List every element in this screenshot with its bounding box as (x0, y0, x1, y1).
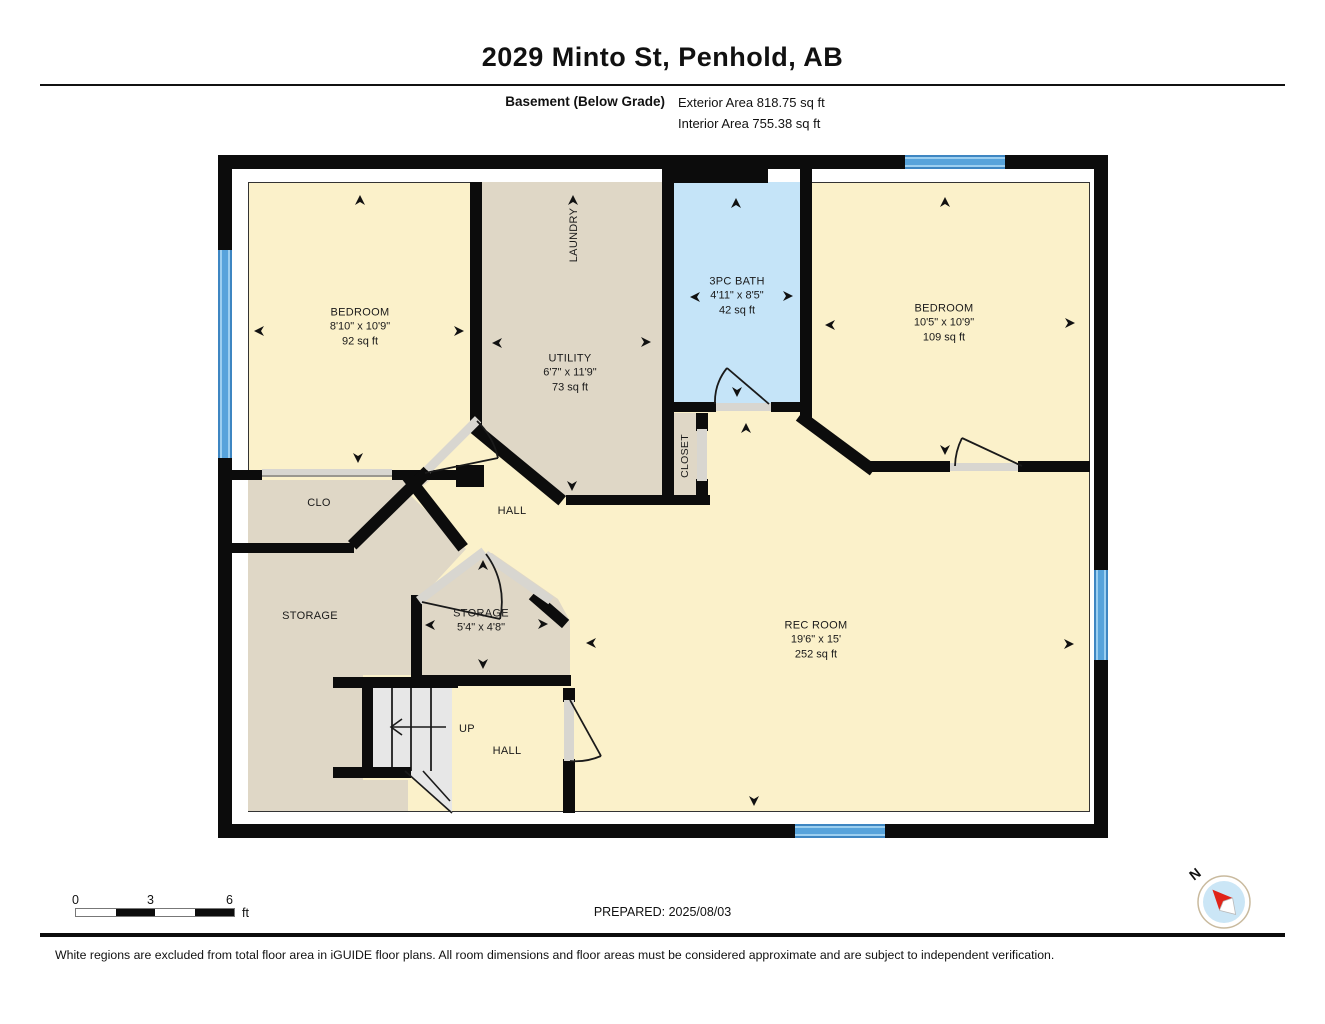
dimension-arrow-icon (492, 338, 502, 348)
door-swings (422, 368, 1022, 761)
dimension-arrows (254, 195, 1075, 806)
dimension-arrow-icon (690, 292, 700, 302)
floor-label: Basement (Below Grade) (0, 94, 665, 109)
dimension-arrow-icon (641, 337, 651, 347)
disclaimer-text: White regions are excluded from total fl… (55, 948, 1054, 962)
exterior-area: Exterior Area 818.75 sq ft (678, 95, 825, 110)
dimension-arrow-icon (586, 638, 596, 648)
dimension-arrow-icon (1064, 639, 1074, 649)
compass-icon: N (1180, 865, 1270, 935)
stairs-marks (391, 719, 452, 813)
dimension-arrow-icon (732, 387, 742, 397)
dimension-arrow-icon (355, 195, 365, 205)
label-storage-left: STORAGE (282, 609, 338, 623)
compass: N (1180, 865, 1270, 935)
label-up: UP (459, 722, 475, 736)
dimension-arrow-icon (478, 659, 488, 669)
label-hall: HALL (498, 504, 527, 518)
floor-plan: BEDROOM 8'10" x 10'9" 92 sq ft LAUNDRY U… (218, 155, 1108, 838)
dimension-arrow-icon (940, 197, 950, 207)
door-leaf (425, 458, 498, 473)
footer-divider (40, 933, 1285, 937)
dimension-arrow-icon (478, 560, 488, 570)
page-title: 2029 Minto St, Penhold, AB (0, 42, 1325, 73)
dimension-arrow-icon (454, 326, 464, 336)
label-storage-mid: STORAGE 5'4" x 4'8" (453, 607, 509, 636)
label-laundry: LAUNDRY (567, 208, 581, 262)
label-closet: CLOSET (679, 434, 693, 478)
door-leaf (570, 700, 601, 756)
plan-annotations-layer (218, 155, 1108, 838)
dimension-arrow-icon (731, 198, 741, 208)
dimension-arrow-icon (825, 320, 835, 330)
door-arc (477, 421, 498, 458)
interior-area: Interior Area 755.38 sq ft (678, 116, 820, 131)
dimension-arrow-icon (353, 453, 363, 463)
label-bath: 3PC BATH 4'11" x 8'5" 42 sq ft (709, 275, 764, 318)
door-arc (715, 368, 727, 404)
label-rec-room: REC ROOM 19'6" x 15' 252 sq ft (785, 619, 848, 662)
dimension-arrow-icon (1065, 318, 1075, 328)
dimension-arrow-icon (568, 195, 578, 205)
dimension-arrow-icon (783, 291, 793, 301)
label-bedroom-left: BEDROOM 8'10" x 10'9" 92 sq ft (330, 306, 390, 349)
dimension-arrow-icon (741, 423, 751, 433)
label-utility: UTILITY 6'7" x 11'9" 73 sq ft (543, 352, 596, 395)
dimension-arrow-icon (940, 445, 950, 455)
prepared-date: PREPARED: 2025/08/03 (0, 905, 1325, 919)
door-leaf (962, 438, 1022, 466)
north-label: N (1186, 865, 1204, 883)
dimension-arrow-icon (254, 326, 264, 336)
label-bedroom-right: BEDROOM 10'5" x 10'9" 109 sq ft (914, 302, 974, 345)
dimension-arrow-icon (425, 620, 435, 630)
dimension-arrow-icon (749, 796, 759, 806)
header-divider (40, 84, 1285, 86)
door-arc (570, 756, 601, 761)
dimension-arrow-icon (538, 619, 548, 629)
door-leaf (727, 368, 769, 404)
label-clo: CLO (307, 496, 331, 510)
door-arc (955, 438, 962, 466)
dimension-arrow-icon (567, 481, 577, 491)
stair-tread-diagonal (423, 771, 450, 801)
label-hall-lower: HALL (493, 744, 522, 758)
